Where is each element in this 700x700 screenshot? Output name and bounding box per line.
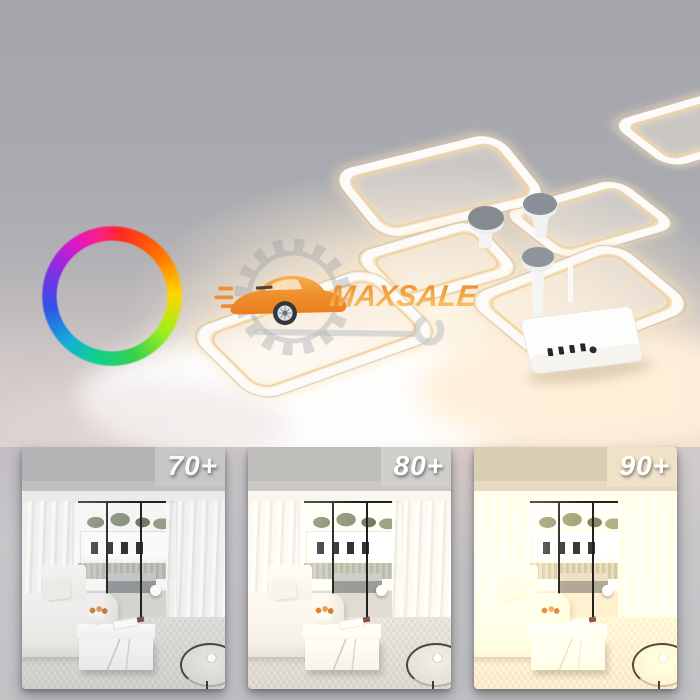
coffee-cup [658, 654, 669, 663]
lamp-ring-edge [607, 82, 700, 170]
oranges [87, 605, 109, 615]
marble-side [305, 639, 379, 670]
cri-label-70: 70+ [168, 451, 219, 482]
ceiling-strip [474, 491, 677, 501]
label-box: 90+ [607, 447, 677, 487]
car-icon [214, 276, 346, 325]
brand-watermark-text: MAXSALE [328, 282, 478, 312]
rgb-color-wheel-icon [41, 225, 183, 367]
label-box: 70+ [155, 447, 225, 487]
ceiling-strip [22, 491, 225, 501]
coffee-table [77, 624, 155, 670]
room-photo: 80+ [248, 447, 451, 689]
coffee-table [303, 624, 381, 670]
side-table-leg [206, 681, 208, 689]
room-thumbnail-70: 70+ [22, 447, 225, 689]
side-table-leg [432, 681, 434, 689]
ceiling-light-fixture [0, 0, 700, 447]
room-thumbnail-80: 80+ [248, 447, 451, 689]
marble-side [79, 639, 153, 670]
oranges [539, 605, 561, 615]
room-thumbnail-90: 90+ [474, 447, 677, 689]
room-photo: 90+ [474, 447, 677, 689]
product-image: MAXSALE [0, 0, 700, 700]
pillow [45, 577, 72, 600]
living-room-scene [22, 501, 225, 689]
pillow [497, 577, 524, 600]
coffee-table [529, 624, 607, 670]
living-room-scene [474, 501, 677, 689]
side-table-leg [658, 681, 660, 689]
ceiling-strip [248, 491, 451, 501]
cri-label-90: 90+ [620, 451, 671, 482]
coffee-cup [206, 654, 217, 663]
room-photo: 70+ [22, 447, 225, 689]
coffee-cup [432, 654, 443, 663]
label-box: 80+ [381, 447, 451, 487]
oranges [313, 605, 335, 615]
comparison-background: 70+ [0, 447, 700, 700]
living-room-scene [248, 501, 451, 689]
ceiling-photo-background: MAXSALE [0, 0, 700, 447]
marble-side [531, 639, 605, 670]
cri-label-80: 80+ [394, 451, 445, 482]
pillow [271, 577, 298, 600]
